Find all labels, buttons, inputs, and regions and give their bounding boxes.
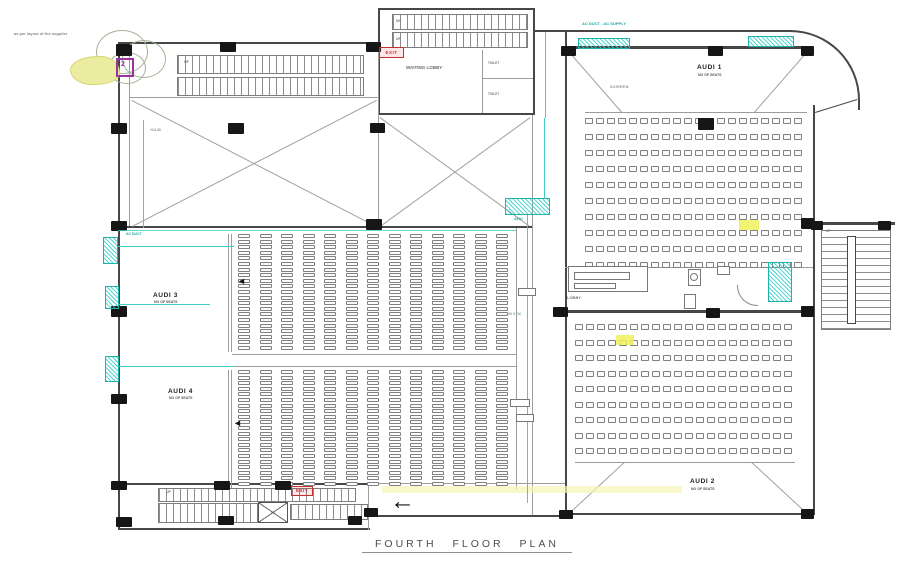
seat: [783, 118, 791, 124]
seat: [281, 290, 293, 294]
seat: [410, 335, 422, 339]
seat: [346, 482, 358, 486]
seat: [367, 301, 379, 305]
seat: [784, 433, 792, 439]
basin-fixture: [717, 266, 730, 275]
seat: [596, 166, 604, 172]
seat: [260, 420, 272, 424]
seat: [389, 301, 401, 305]
seat: [453, 448, 465, 452]
seat: [260, 307, 272, 311]
seat: [475, 454, 487, 458]
ac-unit: [578, 38, 630, 49]
seat: [260, 482, 272, 486]
seat: [496, 279, 508, 283]
seat: [281, 296, 293, 300]
seat: [586, 324, 594, 330]
seat: [281, 476, 293, 480]
highlight-mark: [616, 335, 634, 345]
seat: [663, 417, 671, 423]
seat: [324, 251, 336, 255]
cross-aisle-line: [232, 366, 516, 367]
seat: [432, 381, 444, 385]
seat: [303, 279, 315, 283]
seat: [685, 448, 693, 454]
seat: [346, 392, 358, 396]
seat: [346, 296, 358, 300]
seat: [346, 346, 358, 350]
seat: [303, 437, 315, 441]
seat: [762, 371, 770, 377]
seat: [367, 335, 379, 339]
seat: [619, 371, 627, 377]
entry-arrow-icon: ←: [390, 490, 415, 512]
seat: [707, 340, 715, 346]
seat: [260, 324, 272, 328]
seat: [303, 262, 315, 266]
seat: [389, 381, 401, 385]
seat: [453, 279, 465, 283]
seat: [641, 371, 649, 377]
seat: [432, 240, 444, 244]
seat: [652, 448, 660, 454]
seat: [496, 426, 508, 430]
seat: [410, 409, 422, 413]
stair-top-left: [177, 77, 364, 96]
seat: [367, 448, 379, 452]
seat: [762, 402, 770, 408]
seat: [619, 355, 627, 361]
seat: [597, 433, 605, 439]
seat: [750, 230, 758, 236]
seat: [324, 346, 336, 350]
seat: [367, 346, 379, 350]
seat: [740, 340, 748, 346]
seat: [303, 448, 315, 452]
stair-right-rail: [847, 236, 856, 324]
seat: [324, 329, 336, 333]
wall: [482, 50, 483, 113]
seat: [794, 262, 802, 268]
seat: [303, 381, 315, 385]
seat: [238, 245, 250, 249]
seat: [346, 329, 358, 333]
seat: [346, 268, 358, 272]
seat: [303, 251, 315, 255]
seat: [453, 240, 465, 244]
seat: [651, 230, 659, 236]
seat: [453, 409, 465, 413]
seat: [597, 448, 605, 454]
hvac-supply-note: AC DUCT - AC SUPPLY: [582, 21, 626, 26]
seat: [303, 284, 315, 288]
seat: [389, 307, 401, 311]
seat: [238, 324, 250, 328]
seat: [281, 432, 293, 436]
seat: [238, 381, 250, 385]
seat: [281, 340, 293, 344]
seat: [260, 251, 272, 255]
seat: [346, 381, 358, 385]
seat: [410, 262, 422, 266]
column: [116, 517, 132, 527]
seat: [739, 150, 747, 156]
seat: [772, 182, 780, 188]
seat: [762, 355, 770, 361]
seat: [389, 329, 401, 333]
ac-duct-line: [545, 32, 546, 118]
seat: [630, 448, 638, 454]
seat: [762, 324, 770, 330]
seat: [475, 240, 487, 244]
seat: [303, 296, 315, 300]
seat: [674, 355, 682, 361]
seat: [717, 134, 725, 140]
seat: [324, 370, 336, 374]
seat: [585, 214, 593, 220]
seat: [475, 420, 487, 424]
seat: [761, 214, 769, 220]
seat: [629, 134, 637, 140]
seat: [729, 355, 737, 361]
seat: [496, 273, 508, 277]
seat: [629, 150, 637, 156]
seat: [585, 182, 593, 188]
seat: [496, 284, 508, 288]
seat: [432, 307, 444, 311]
seat: [432, 290, 444, 294]
seat: [728, 198, 736, 204]
seat: [410, 392, 422, 396]
stair-up-label: UP: [184, 60, 189, 64]
seat: [718, 371, 726, 377]
seat: [761, 166, 769, 172]
seat: [238, 340, 250, 344]
column: [801, 509, 814, 519]
seat: [303, 398, 315, 402]
seat: [629, 246, 637, 252]
seat: [432, 404, 444, 408]
seat: [453, 312, 465, 316]
seat: [662, 118, 670, 124]
seat: [432, 273, 444, 277]
seat: [496, 398, 508, 402]
seat: [761, 246, 769, 252]
seat: [260, 387, 272, 391]
seat: [389, 404, 401, 408]
seat: [410, 296, 422, 300]
seat: [303, 432, 315, 436]
seat: [260, 318, 272, 322]
seat: [432, 460, 444, 464]
seat: [673, 134, 681, 140]
seat: [281, 234, 293, 238]
seat: [739, 230, 747, 236]
seat: [706, 198, 714, 204]
seat: [281, 387, 293, 391]
seat: [641, 340, 649, 346]
seat: [324, 240, 336, 244]
seat: [303, 324, 315, 328]
seat: [367, 262, 379, 266]
seat: [453, 284, 465, 288]
ac-unit: [748, 36, 794, 47]
seat: [389, 387, 401, 391]
seat: [303, 404, 315, 408]
seat: [303, 301, 315, 305]
seat: [728, 150, 736, 156]
seat: [260, 262, 272, 266]
seat: [475, 370, 487, 374]
seat: [432, 234, 444, 238]
seat: [432, 476, 444, 480]
stair-dn-label: DN: [396, 19, 401, 23]
seat: [303, 460, 315, 464]
level-mark: +14.40: [150, 128, 161, 132]
seat: [238, 268, 250, 272]
seat: [389, 471, 401, 475]
seat: [794, 118, 802, 124]
seat: [575, 402, 583, 408]
seat: [389, 465, 401, 469]
seat: [586, 371, 594, 377]
seat: [453, 454, 465, 458]
seat: [260, 245, 272, 249]
seat: [410, 256, 422, 260]
seat: [410, 420, 422, 424]
seat: [410, 284, 422, 288]
seat: [453, 443, 465, 447]
audi1-splay-line: [567, 50, 622, 112]
seat: [496, 340, 508, 344]
seat: [389, 420, 401, 424]
seat: [260, 312, 272, 316]
seat: [618, 230, 626, 236]
seat: [496, 471, 508, 475]
seat: [367, 312, 379, 316]
seat: [684, 166, 692, 172]
seat: [453, 420, 465, 424]
seat: [706, 150, 714, 156]
column: [364, 508, 378, 517]
seat: [773, 433, 781, 439]
seat: [630, 433, 638, 439]
seat: [238, 454, 250, 458]
seat: [238, 256, 250, 260]
seat: [496, 262, 508, 266]
seat: [596, 150, 604, 156]
lobby-label: LOBBY: [567, 295, 581, 300]
seat: [773, 355, 781, 361]
seat: [496, 476, 508, 480]
seat: [389, 376, 401, 380]
seat: [432, 340, 444, 344]
seat: [432, 329, 444, 333]
seat: [453, 387, 465, 391]
seat: [346, 476, 358, 480]
seat: [652, 340, 660, 346]
seat: [367, 268, 379, 272]
seat: [718, 417, 726, 423]
seat: [453, 234, 465, 238]
seat: [238, 476, 250, 480]
seat: [238, 312, 250, 316]
seat: [475, 346, 487, 350]
seat: [496, 251, 508, 255]
screen-line-audi3: [231, 234, 232, 352]
seat: [475, 268, 487, 272]
seat: [260, 370, 272, 374]
seat: [685, 402, 693, 408]
seat: [389, 340, 401, 344]
seat: [410, 301, 422, 305]
exit-label: EXIT: [380, 48, 403, 57]
seat: [673, 166, 681, 172]
seat: [662, 198, 670, 204]
seat: [238, 432, 250, 436]
seat: [260, 415, 272, 419]
seat: [619, 402, 627, 408]
toilet-label: TOILET: [488, 92, 499, 96]
seat: [496, 437, 508, 441]
ahu-unit: [505, 198, 550, 215]
seat: [696, 386, 704, 392]
seat: [784, 386, 792, 392]
waiting-lobby-label: WAITING LOBBY: [406, 65, 442, 70]
seat: [260, 471, 272, 475]
seat: [324, 476, 336, 480]
seat: [739, 262, 747, 268]
column: [370, 123, 385, 133]
seat: [674, 386, 682, 392]
seat: [740, 355, 748, 361]
seat: [389, 398, 401, 402]
seat: [410, 381, 422, 385]
seat: [597, 355, 605, 361]
seat: [346, 404, 358, 408]
stair-up-label: UP: [396, 37, 401, 41]
seat: [761, 198, 769, 204]
seat: [729, 340, 737, 346]
seat: [303, 392, 315, 396]
seat: [432, 256, 444, 260]
column: [698, 118, 714, 130]
seat: [608, 448, 616, 454]
exit-label: EXIT: [292, 487, 312, 495]
seat: [324, 460, 336, 464]
seat: [783, 166, 791, 172]
seat: [453, 460, 465, 464]
seat: [695, 214, 703, 220]
seat: [596, 198, 604, 204]
seat: [762, 448, 770, 454]
seat: [260, 346, 272, 350]
screen-line-audi2: [575, 462, 795, 463]
seat: [324, 324, 336, 328]
seat: [496, 268, 508, 272]
seat: [475, 329, 487, 333]
seat: [432, 245, 444, 249]
seat: [740, 448, 748, 454]
seat: [652, 355, 660, 361]
seat: [453, 476, 465, 480]
seat: [367, 329, 379, 333]
seat: [346, 256, 358, 260]
seat: [707, 371, 715, 377]
audi3-label: AUDI 3: [153, 292, 178, 299]
seat: [663, 402, 671, 408]
stair-top-mid: [392, 14, 528, 30]
seat: [346, 471, 358, 475]
seat: [750, 198, 758, 204]
ac-grill: [105, 286, 119, 309]
seat: [475, 324, 487, 328]
seat: [662, 262, 670, 268]
seat: [260, 432, 272, 436]
seat: [346, 290, 358, 294]
seat: [794, 166, 802, 172]
seat: [281, 318, 293, 322]
seat: [750, 182, 758, 188]
audi1-label: AUDI 1: [697, 64, 722, 71]
seat: [597, 402, 605, 408]
wall: [482, 78, 533, 79]
seat: [432, 251, 444, 255]
column: [111, 481, 127, 490]
seat: [410, 251, 422, 255]
seat: [773, 340, 781, 346]
seat: [651, 150, 659, 156]
seat: [432, 318, 444, 322]
hvac-grill-note: AC DUCT: [126, 232, 142, 236]
seat: [432, 268, 444, 272]
detail-callout-number: 2: [121, 61, 125, 68]
seat: [410, 268, 422, 272]
screen-label: SCREEN: [610, 85, 629, 89]
seat: [410, 448, 422, 452]
seat: [640, 246, 648, 252]
seat: [281, 240, 293, 244]
seat: [496, 387, 508, 391]
seat: [389, 324, 401, 328]
seat: [410, 476, 422, 480]
seat: [707, 324, 715, 330]
seat: [629, 166, 637, 172]
seat: [367, 279, 379, 283]
column: [553, 307, 568, 317]
seat: [651, 198, 659, 204]
seat: [238, 443, 250, 447]
seat: [674, 340, 682, 346]
seat: [475, 476, 487, 480]
seat: [281, 398, 293, 402]
seat: [718, 324, 726, 330]
seat: [728, 166, 736, 172]
seat: [303, 335, 315, 339]
seat: [586, 355, 594, 361]
seat: [432, 437, 444, 441]
seat: [575, 371, 583, 377]
column: [218, 516, 234, 525]
wall: [565, 310, 813, 313]
seat: [751, 324, 759, 330]
seat: [607, 230, 615, 236]
seat: [718, 433, 726, 439]
door-swing: [737, 285, 758, 306]
seat: [281, 256, 293, 260]
seat: [432, 370, 444, 374]
seat: [750, 118, 758, 124]
